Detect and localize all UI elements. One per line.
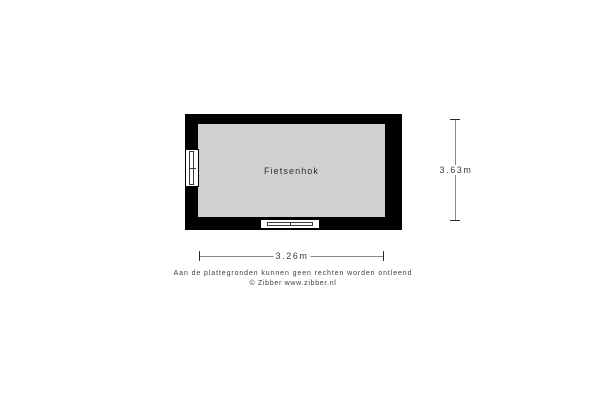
footer: Aan de plattegronden kunnen geen rechten… bbox=[0, 269, 586, 289]
dimension-height-tick-top bbox=[450, 119, 460, 120]
dimension-width-label: 3.26m bbox=[273, 251, 310, 261]
copyright-text: © Zibber www.zibber.nl bbox=[0, 279, 586, 289]
dimension-height-tick-bottom bbox=[450, 220, 460, 221]
window-left-divider bbox=[189, 168, 196, 169]
disclaimer-text: Aan de plattegronden kunnen geen rechten… bbox=[0, 269, 586, 279]
window-left-icon bbox=[185, 149, 199, 187]
dimension-width-tick-left bbox=[199, 251, 200, 261]
dimension-width-tick-right bbox=[383, 251, 384, 261]
room-walls: Fietsenhok bbox=[185, 114, 402, 230]
room-floor: Fietsenhok bbox=[198, 124, 385, 217]
room-label: Fietsenhok bbox=[264, 166, 319, 176]
window-bottom-icon bbox=[260, 219, 320, 229]
window-bottom-divider bbox=[290, 222, 291, 226]
dimension-height-label: 3.63m bbox=[437, 165, 474, 175]
floorplan-canvas: Fietsenhok 3.63m 3.26m Aan de plattegron… bbox=[0, 0, 600, 400]
